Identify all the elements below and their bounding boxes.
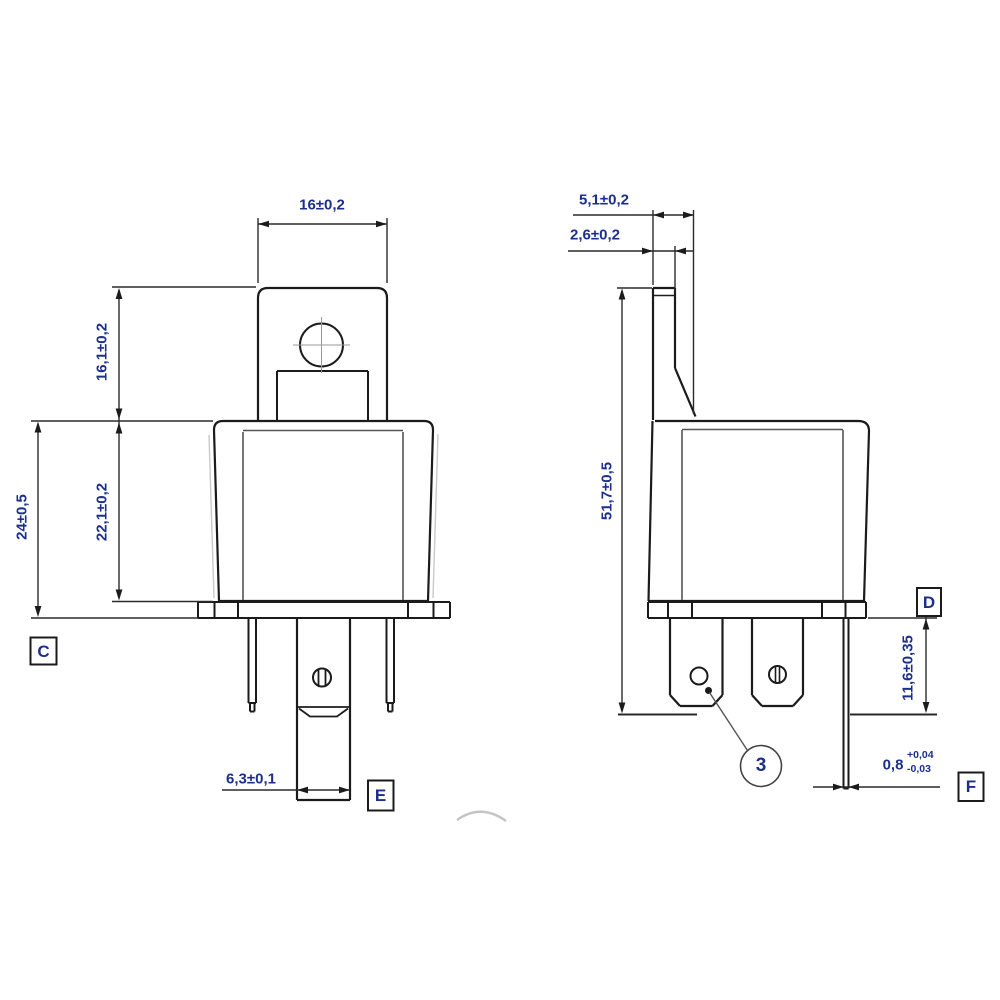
reference-label-c: C <box>37 642 49 662</box>
dim-pin-length: 11,6±0,35 <box>900 635 917 701</box>
dim-bracket-height: 16,1±0,2 <box>94 323 111 381</box>
reference-boxes <box>31 588 984 811</box>
dim-pin-thickness-upper-tolerance: +0,04 <box>907 749 934 761</box>
dim-pin-width: 6,3±0,1 <box>226 771 276 788</box>
front-view-dimensions <box>31 218 387 790</box>
reference-label-f: F <box>966 777 976 797</box>
drawing-canvas <box>0 0 1000 1000</box>
leader-anchor-dot <box>705 687 712 694</box>
dimension-arrowheads <box>35 212 930 794</box>
front-view-geometry <box>198 288 450 800</box>
dim-overall-height-front: 24±0,5 <box>14 494 31 540</box>
dim-bracket-width: 16±0,2 <box>299 197 345 214</box>
reference-label-e: E <box>375 786 386 806</box>
reference-label-d: D <box>923 593 935 613</box>
dim-pin-thickness: 0,8 <box>883 757 904 774</box>
side-view-geometry <box>648 288 869 789</box>
dim-bracket-depth: 5,1±0,2 <box>579 192 629 209</box>
dim-body-height: 22,1±0,2 <box>94 483 111 541</box>
relay-technical-drawing: 16±0,2 16,1±0,2 22,1±0,2 24±0,5 6,3±0,1 … <box>0 0 1000 1000</box>
dim-pin-thickness-lower-tolerance: -0,03 <box>907 763 931 775</box>
dim-bracket-thickness: 2,6±0,2 <box>570 227 620 244</box>
dim-overall-height-side: 51,7±0,5 <box>599 462 616 520</box>
faint-arc-artifact <box>457 812 506 821</box>
balloon-item-number: 3 <box>756 755 767 777</box>
